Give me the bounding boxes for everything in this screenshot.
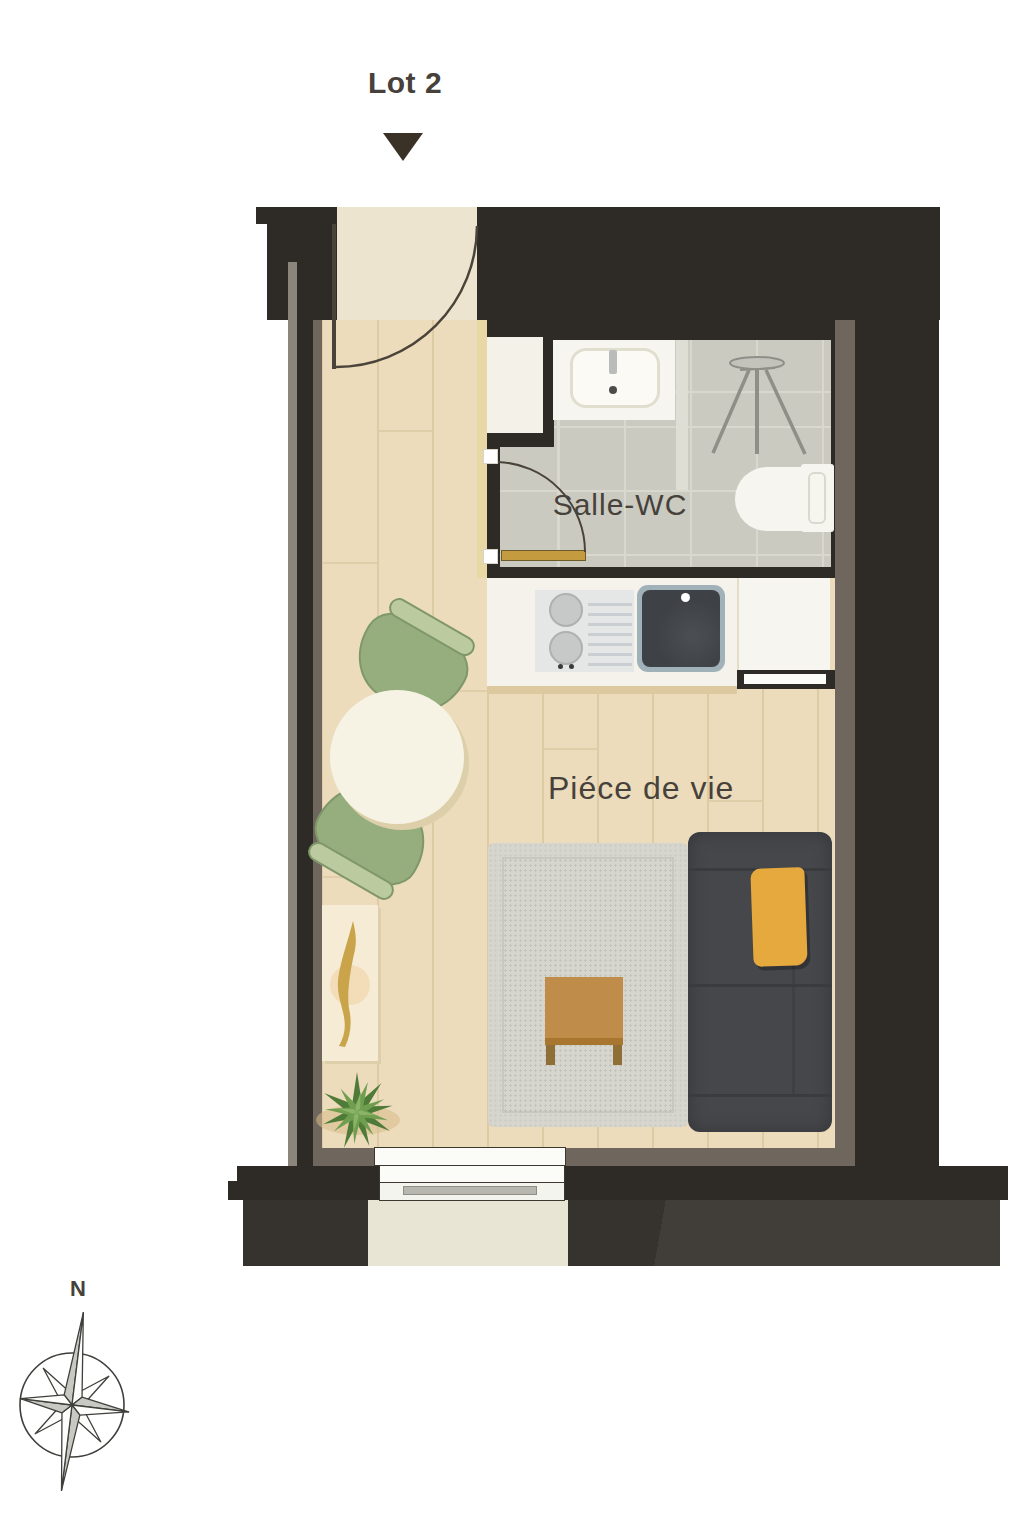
throw-blanket [750, 867, 807, 967]
sofa-seam [688, 984, 832, 987]
right-wall [855, 210, 939, 1166]
bottom-wall-step [228, 1181, 246, 1200]
window-frame-inner [380, 1166, 564, 1182]
bathroom-closet [487, 337, 543, 433]
right-wall-inner-face [835, 320, 855, 1148]
left-wall-outer-face [288, 262, 297, 1166]
coffee-table-edge [545, 1038, 623, 1045]
burner-icon [549, 593, 583, 627]
window-frame-outer [375, 1148, 565, 1165]
lot-label: Lot 2 [330, 66, 480, 100]
floor-seam [322, 562, 377, 564]
bathroom-door-swing-arc-icon [488, 455, 592, 559]
kitchen-sink-icon [637, 585, 725, 672]
burner-icon [549, 631, 583, 665]
sink-bowl [642, 590, 720, 667]
drain-icon [609, 386, 617, 394]
bottom-wall [237, 1166, 1008, 1200]
fridge [737, 578, 830, 670]
left-wall-inner-face [313, 320, 322, 1148]
kitchen-unit-handle [744, 674, 826, 684]
dining-table [330, 690, 464, 824]
compass-rose-icon [8, 1272, 158, 1518]
lot-marker-icon [383, 133, 423, 161]
window-glass-line [404, 1187, 536, 1194]
knob-dot [558, 664, 563, 669]
floor-seam [542, 748, 597, 750]
coffee-table-leg [546, 1045, 555, 1065]
coffee-table [545, 977, 623, 1038]
drainer-lines [588, 596, 632, 666]
toilet-bowl-icon [735, 467, 805, 531]
bottom-ledge [243, 1200, 1000, 1266]
toilet-tank-lid [808, 472, 826, 524]
coffee-table-leg [613, 1045, 622, 1065]
entry-partition-wall [477, 320, 487, 578]
plant-icon [305, 1062, 409, 1162]
faucet-icon [609, 350, 617, 374]
left-wall [297, 222, 313, 1166]
console-decor-icon [322, 905, 378, 1061]
entry-door-swing-arc-icon [330, 218, 485, 376]
floor-plan-page: Lot 2 Salle-WC [0, 0, 1024, 1536]
floor-seam [377, 430, 432, 432]
balcony [368, 1200, 568, 1266]
closet-wall-bottom [487, 433, 554, 447]
counter-shadow [487, 686, 737, 694]
sofa-seam [688, 1094, 832, 1097]
shower-tripod-icon [700, 350, 815, 462]
knob-dot [569, 664, 574, 669]
shower-partition [676, 340, 688, 490]
sink-drain-icon [681, 593, 690, 602]
console-table [322, 905, 378, 1061]
living-room-label: Piéce de vie [548, 770, 778, 807]
window-glazing [380, 1183, 564, 1200]
